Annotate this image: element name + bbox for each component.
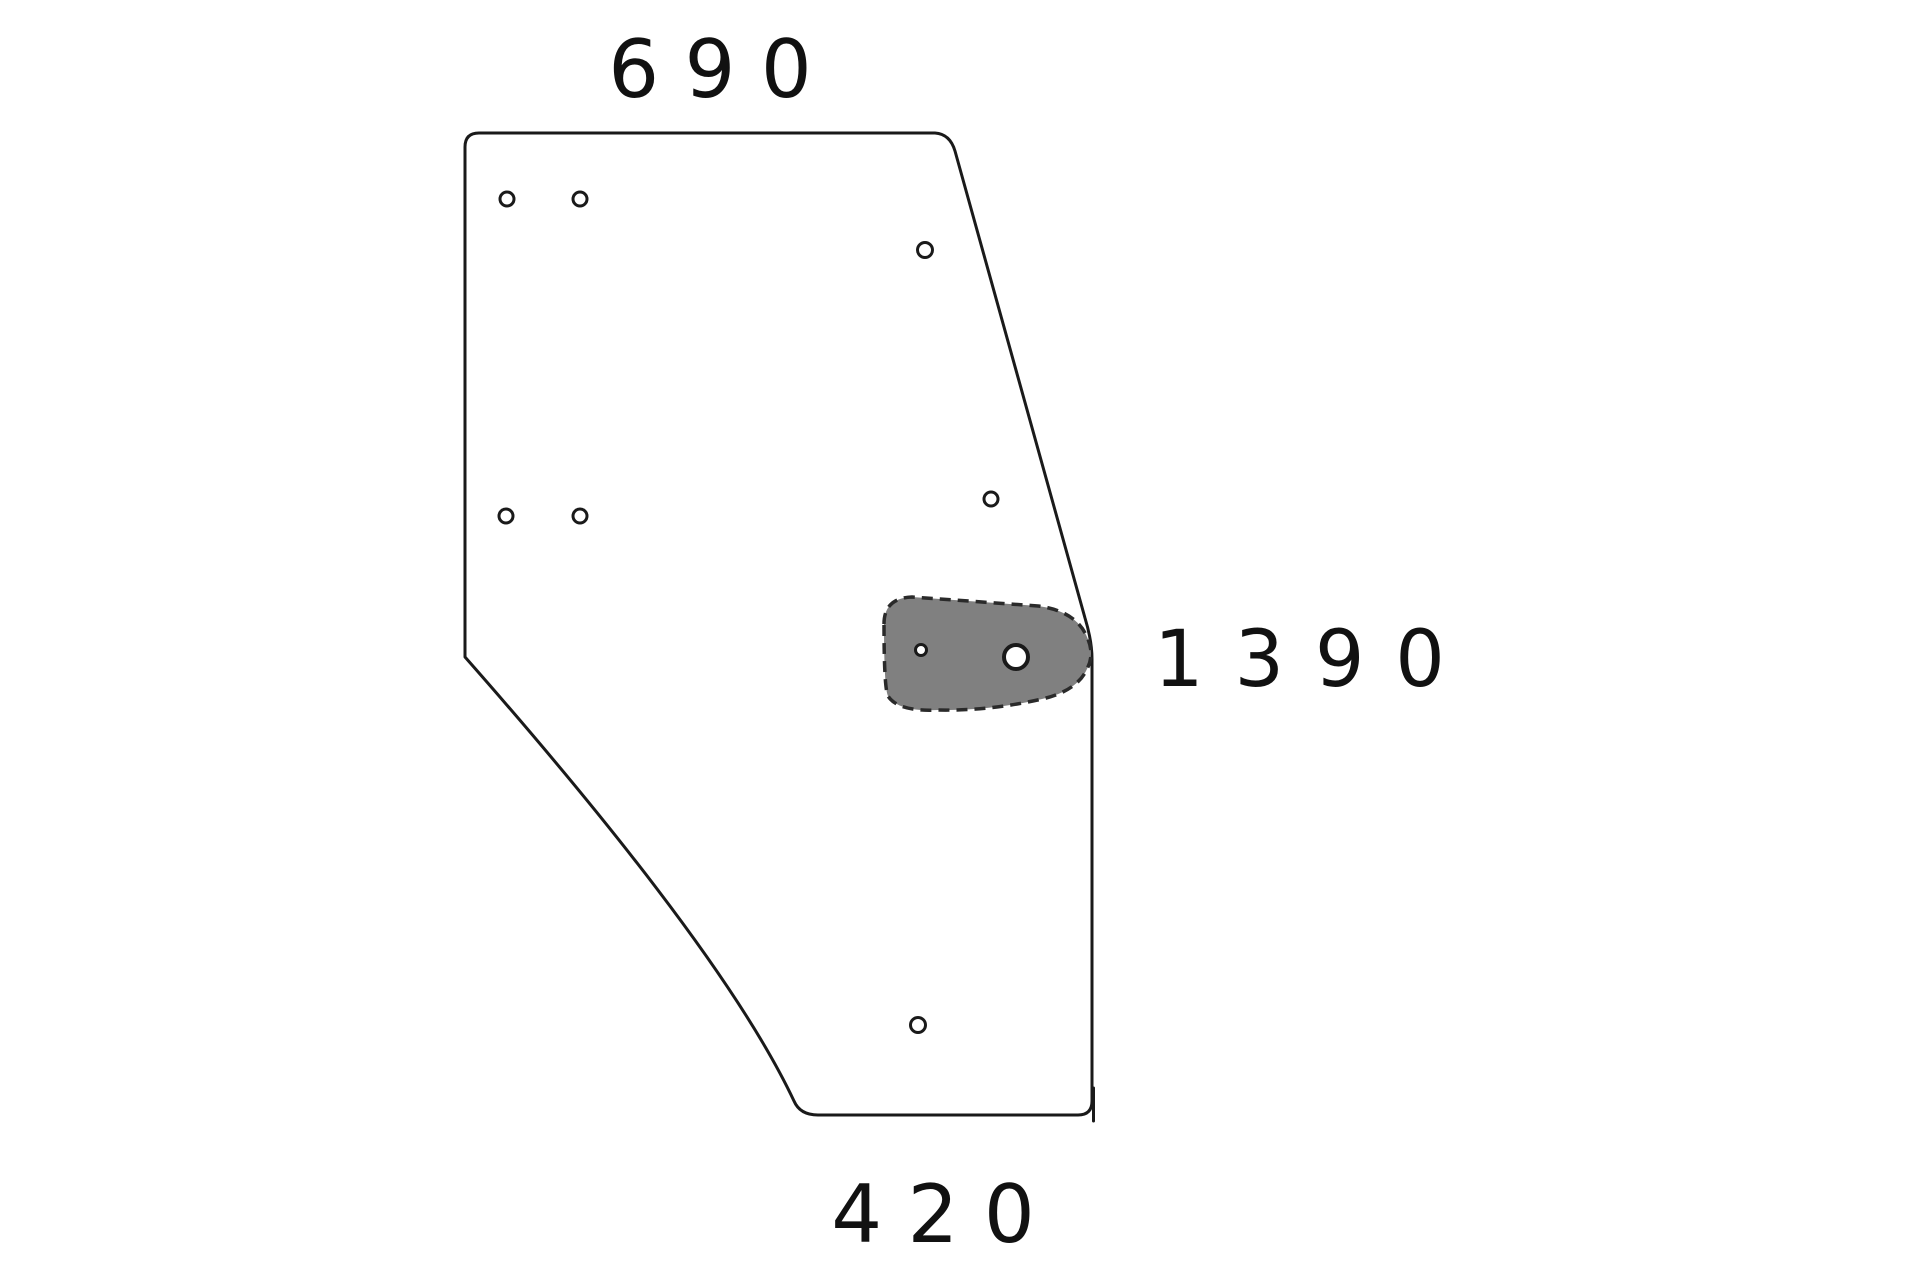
technical-diagram: 6 9 0 1 3 9 0 4 2 0 bbox=[0, 0, 1920, 1280]
dimension-label-top-width: 6 9 0 bbox=[608, 23, 812, 116]
pad-hole bbox=[916, 645, 927, 656]
mounting-hole bbox=[573, 509, 587, 523]
mounting-hole bbox=[984, 492, 998, 506]
dimension-label-bottom-width: 4 2 0 bbox=[831, 1168, 1035, 1261]
mounting-hole bbox=[499, 509, 513, 523]
diagram-canvas: 6 9 0 1 3 9 0 4 2 0 bbox=[0, 0, 1920, 1280]
dimension-label-right-height: 1 3 9 0 bbox=[1154, 615, 1448, 705]
mounting-hole bbox=[918, 243, 933, 258]
mounting-hole bbox=[573, 192, 587, 206]
pad-hole bbox=[1004, 645, 1028, 669]
mounting-hole bbox=[500, 192, 514, 206]
mounting-hole bbox=[911, 1018, 926, 1033]
